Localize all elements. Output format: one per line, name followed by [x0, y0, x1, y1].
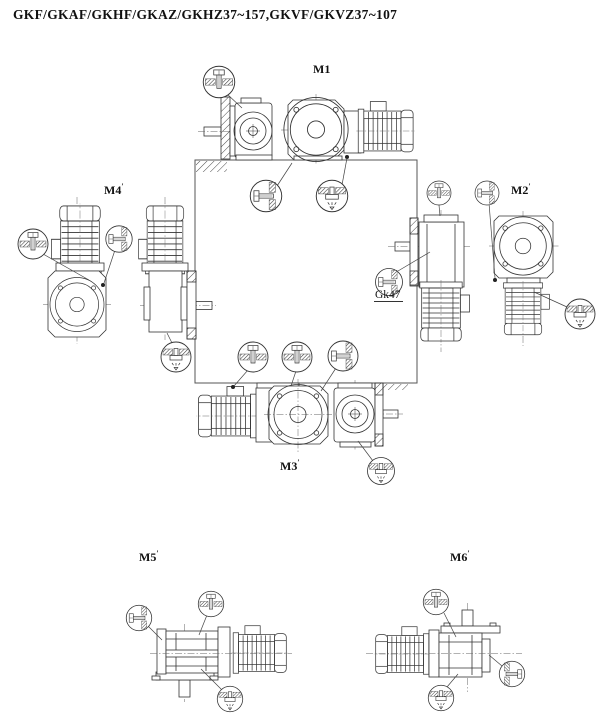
label-m5: M5′	[139, 550, 159, 565]
oil-drain-plug-icon	[428, 685, 454, 711]
breather-plug-icon	[423, 589, 449, 615]
breather-plug-icon	[203, 66, 235, 98]
m3-drawing-group	[197, 379, 403, 452]
label-m3: M3′	[280, 459, 300, 474]
m2-drawing-group	[388, 210, 559, 352]
oil-level-plug-icon	[106, 226, 132, 252]
label-m4: M4′	[104, 183, 124, 198]
breather-plug-icon	[18, 229, 48, 259]
oil-level-plug-icon	[475, 181, 499, 205]
label-m1: M1	[313, 62, 330, 77]
gk47-callout-label: Gk47	[374, 289, 403, 302]
breather-plug-icon	[238, 342, 268, 372]
mounting-diagram-svg	[0, 0, 600, 724]
oil-drain-plug-icon	[316, 180, 348, 212]
page-title: GKF/GKAF/GKHF/GKAZ/GKHZ37~157,GKVF/GKVZ3…	[13, 7, 397, 23]
m1-drawing-group	[198, 94, 415, 165]
oil-level-plug-icon	[499, 661, 525, 687]
oil-drain-plug-icon	[368, 458, 395, 485]
oil-level-plug-icon	[126, 605, 152, 631]
m6-drawing-group	[366, 603, 522, 692]
breather-plug-icon	[282, 342, 312, 372]
oil-drain-plug-icon	[217, 686, 243, 712]
oil-level-plug-icon	[328, 341, 358, 371]
breather-plug-icon	[198, 591, 224, 617]
label-m2: M2′	[511, 183, 531, 198]
label-m6: M6′	[450, 550, 470, 565]
mounting-position-page: GKF/GKAF/GKHF/GKAZ/GKHZ37~157,GKVF/GKVZ3…	[0, 0, 600, 724]
oil-level-plug-icon	[250, 180, 282, 212]
oil-drain-plug-icon	[161, 342, 191, 372]
breather-plug-icon	[427, 181, 451, 205]
m4-drawing-group	[43, 197, 216, 344]
oil-drain-plug-icon	[565, 299, 595, 329]
